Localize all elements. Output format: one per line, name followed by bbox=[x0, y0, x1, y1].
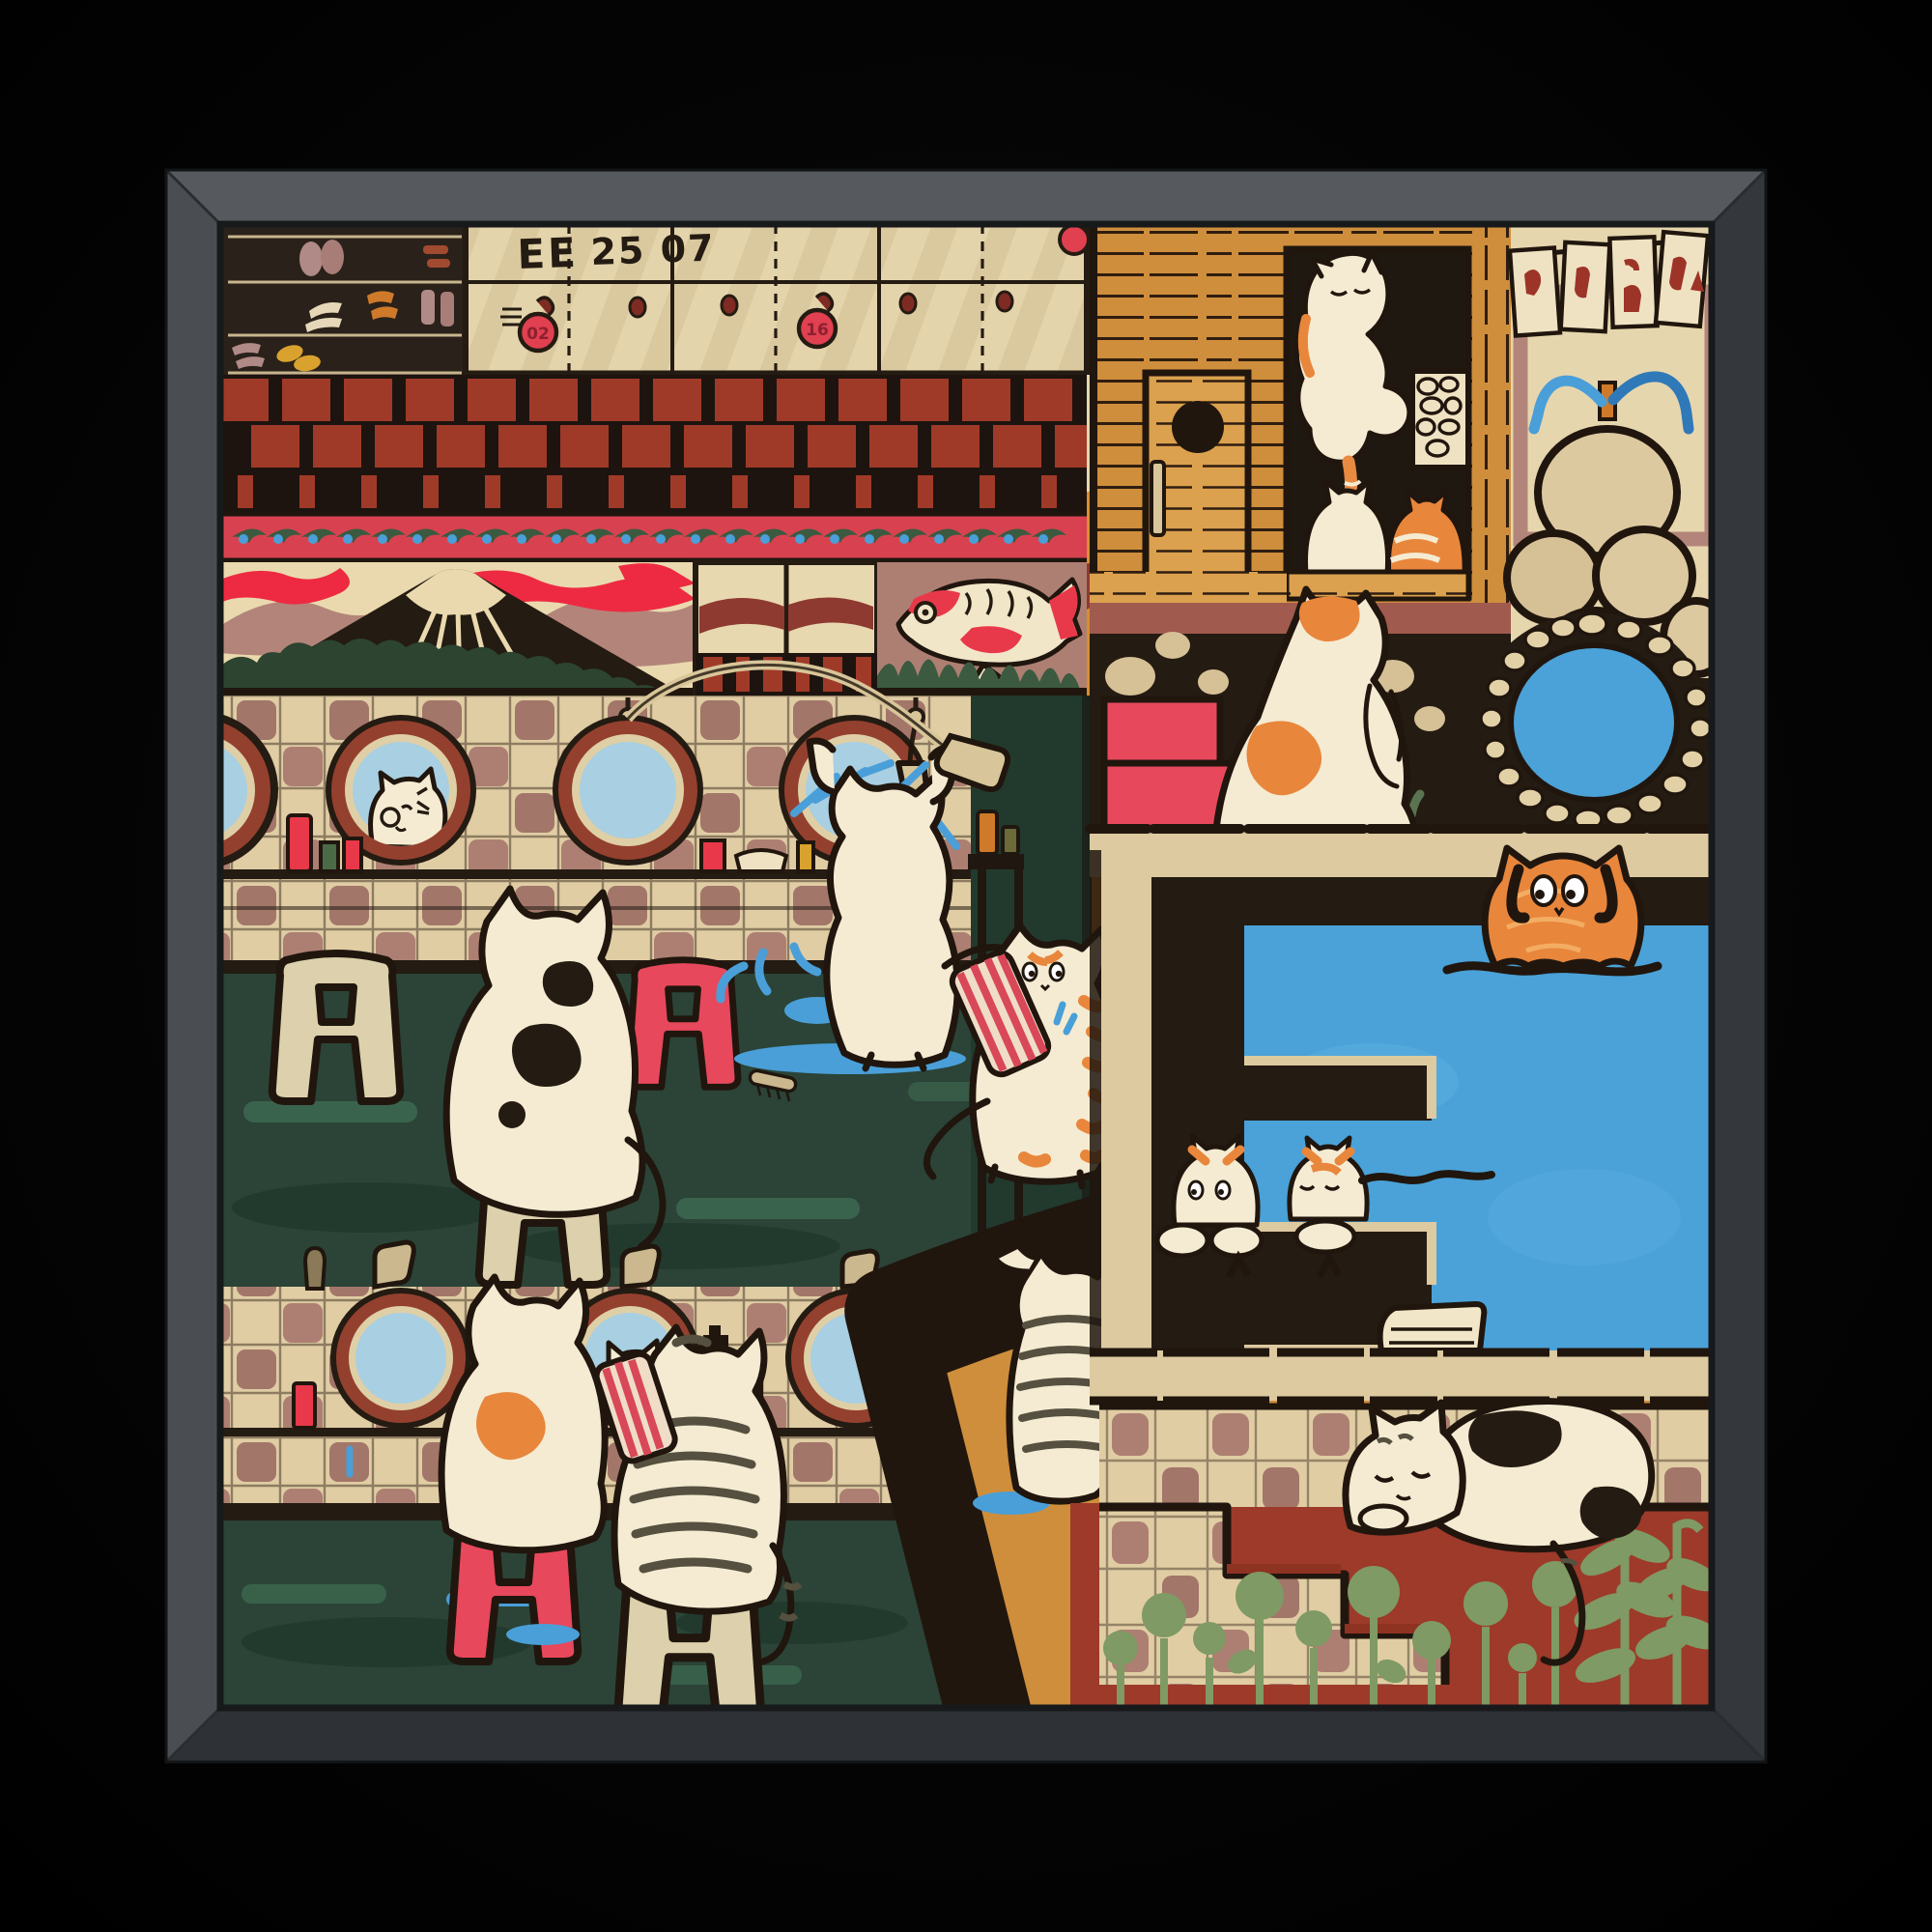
door-handle bbox=[1151, 462, 1164, 535]
soaking-pool bbox=[1090, 827, 1932, 1932]
tag-number-16: 16 bbox=[806, 321, 829, 340]
hanging-towels bbox=[1507, 232, 1716, 335]
door-window bbox=[1172, 401, 1224, 453]
artwork: EE 25 07 02 16 bbox=[0, 224, 1932, 1932]
photo-background: EE 25 07 02 16 bbox=[0, 0, 1932, 1932]
checker-band bbox=[220, 375, 1087, 514]
shoe-lockers: EE 25 07 02 16 bbox=[466, 224, 1089, 375]
wave-garland-band bbox=[220, 514, 1087, 562]
checker-row-2 bbox=[251, 425, 1087, 468]
fuji-mural bbox=[220, 562, 696, 705]
sauna bbox=[1090, 224, 1511, 634]
koi-panel bbox=[877, 562, 1087, 696]
sauna-window bbox=[1287, 249, 1468, 599]
sauna-stones-box bbox=[1412, 371, 1468, 468]
tag-number-02: 02 bbox=[526, 325, 550, 344]
sauna-door bbox=[1146, 373, 1248, 603]
pool-outer-wall bbox=[1101, 850, 1151, 1403]
mirror-2 bbox=[553, 715, 703, 866]
locker-label-left: EE bbox=[517, 229, 580, 278]
soap-cup bbox=[294, 1383, 315, 1428]
garden bbox=[1070, 1402, 1721, 1708]
bottle bbox=[978, 811, 997, 854]
bottle-small bbox=[1003, 827, 1018, 854]
locker-key-tag-partial bbox=[1060, 225, 1089, 254]
locker-label-right: 25 07 bbox=[590, 227, 716, 273]
folded-towel bbox=[1380, 1304, 1485, 1350]
framed-print: EE 25 07 02 16 bbox=[0, 0, 1932, 1932]
noren-curtain bbox=[696, 562, 877, 696]
